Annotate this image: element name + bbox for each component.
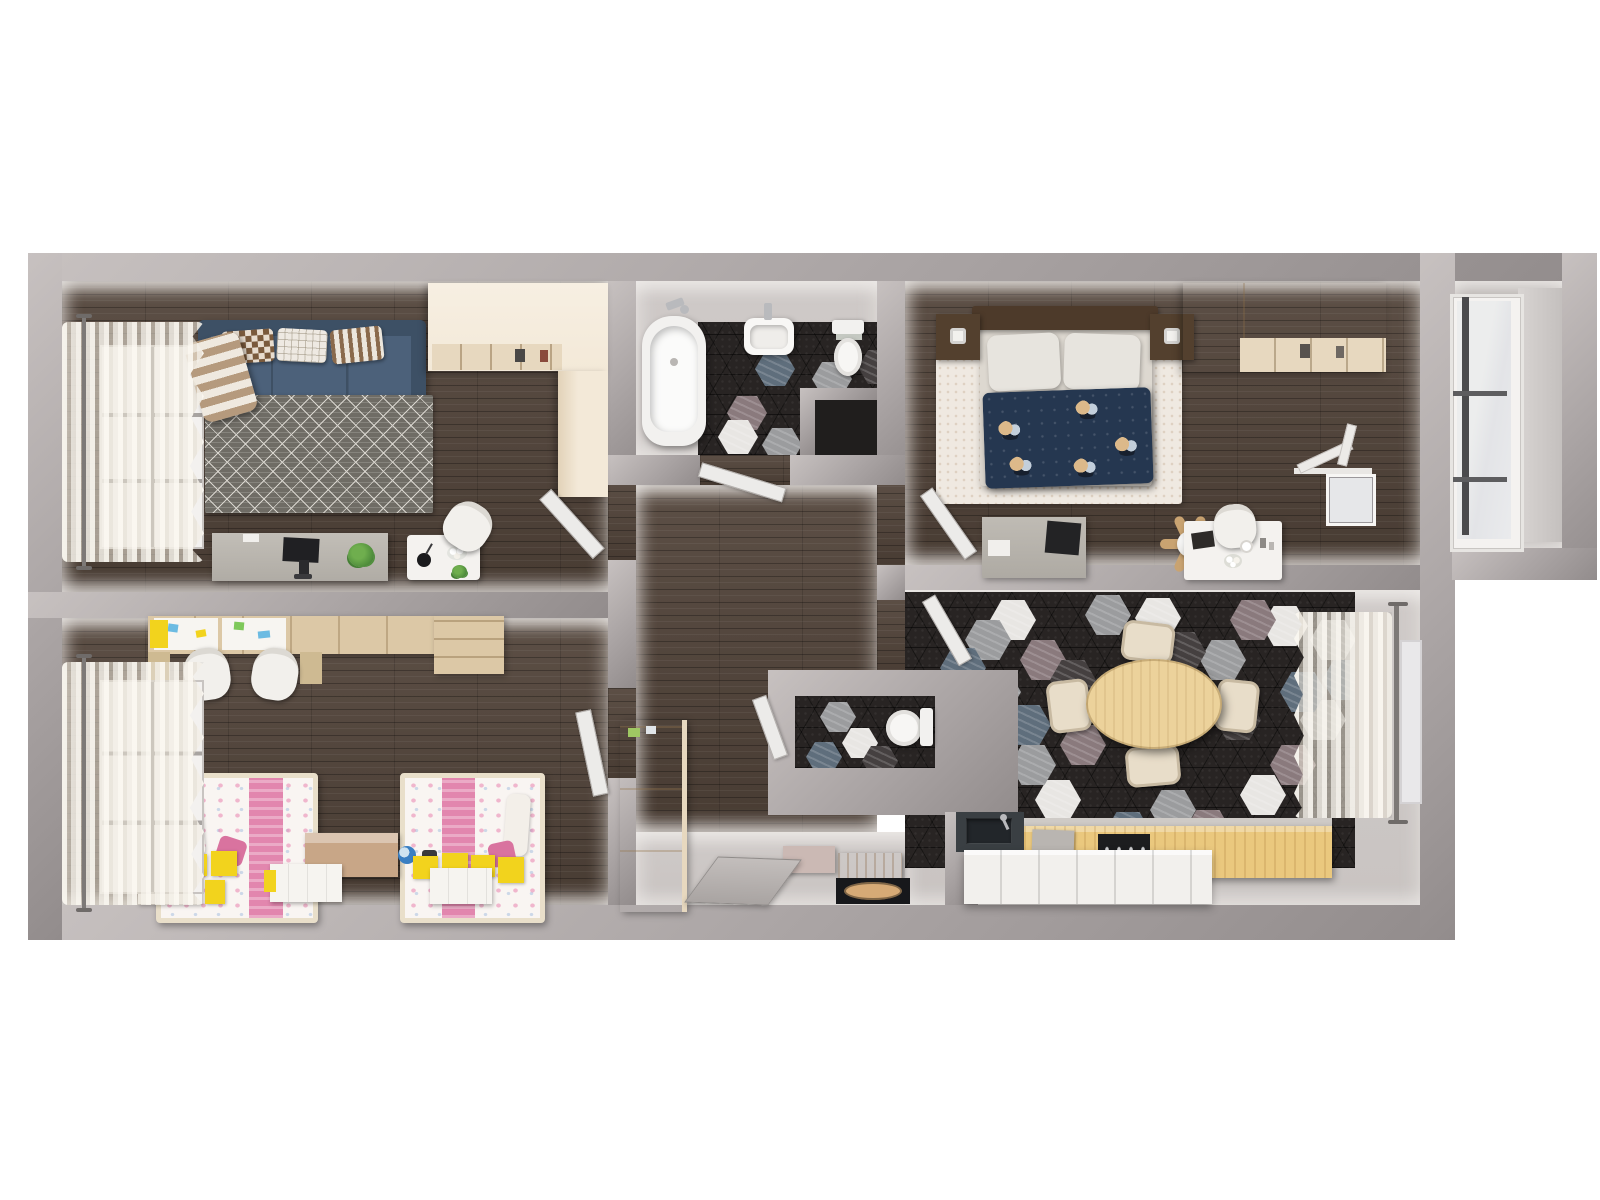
children-curtain-rod <box>82 658 86 910</box>
vanity-flowers <box>1224 554 1242 568</box>
sofa-armrest-right <box>411 320 426 400</box>
bedroom-window-pane <box>1326 474 1376 526</box>
curtain-rod-finial <box>76 566 92 570</box>
balcony-mullion <box>1453 391 1507 396</box>
wardrobe-item-red <box>540 350 548 362</box>
hex-tile-gray <box>762 428 802 455</box>
white-storage-box <box>430 868 492 904</box>
wall-hallway-right-middle <box>877 565 905 600</box>
duvet-flower <box>1073 457 1100 478</box>
duvet-flower <box>1075 399 1102 420</box>
wall-bath-niche-horizontal <box>800 388 877 400</box>
balcony-mullion <box>1453 477 1507 482</box>
living-desk-paper <box>243 534 259 542</box>
hex-tile-blue <box>806 742 842 768</box>
bathtub-basin <box>650 326 698 432</box>
vanity-bottle <box>1260 538 1266 548</box>
yellow-storage-cube <box>211 851 237 876</box>
wall-exterior-top <box>28 253 1597 281</box>
kids-desk-paper <box>258 630 271 638</box>
bathroom-toilet-tank <box>832 320 864 334</box>
bed-headboard <box>972 306 1158 330</box>
curtain-rod-finial <box>76 314 92 318</box>
kitchen-doorway-floor <box>877 598 905 680</box>
living-doorway-floor <box>608 478 636 560</box>
yellow-storage-cube <box>205 880 225 904</box>
bedroom-desk-pad <box>988 540 1010 556</box>
desk-plant <box>348 543 374 567</box>
bathroom-sink <box>744 318 794 355</box>
wc-toilet-tank <box>920 708 933 746</box>
duvet-flower <box>1009 455 1036 476</box>
cabinet-item-green <box>628 728 640 737</box>
bedroom-doorway-floor <box>877 480 905 565</box>
balcony-mullion <box>1462 297 1469 535</box>
kitchen-curtain-rod <box>1394 606 1399 822</box>
dining-chair-south <box>1124 744 1181 789</box>
kids-desk-paper <box>167 623 178 632</box>
kids-desk-paper <box>234 622 245 631</box>
wall-hallway-right-upper <box>877 281 905 480</box>
duvet-flower <box>1114 435 1141 456</box>
wall-living-children-divider <box>28 592 608 618</box>
kids-desk-side-panel <box>300 652 322 684</box>
wall-bathroom-bottom-left <box>608 455 700 485</box>
wall-hallway-left-middle <box>608 560 636 688</box>
bed-duvet-navy-floral <box>982 387 1153 489</box>
wardrobe-item-dark <box>515 349 525 362</box>
yellow-storage-cube <box>498 857 524 883</box>
kitchen-curtain <box>1294 612 1392 818</box>
bathtub <box>642 316 706 446</box>
wardrobe-item-dark <box>1300 344 1310 358</box>
pillow-striped <box>329 325 384 364</box>
balcony-window-reveal <box>1518 288 1562 542</box>
nightstand-lamp-right <box>1164 328 1180 344</box>
wall-balcony-right <box>1562 253 1597 580</box>
bedroom-monitor <box>1045 521 1082 556</box>
hex-tile-gray <box>820 702 856 732</box>
bathroom-toilet-bowl <box>834 338 862 376</box>
kitchen-cabinet-fronts <box>964 850 1212 904</box>
floor-plan-canvas <box>0 0 1600 1200</box>
table-lamp <box>417 553 431 567</box>
curtain-rod-finial <box>1388 602 1408 606</box>
wardrobe-item-gray <box>1336 346 1344 358</box>
vanity-photo-frame <box>1191 531 1215 550</box>
kitchen-window-pane <box>1400 640 1422 804</box>
curtain-rod-finial <box>76 654 92 658</box>
hex-tile-blue <box>755 352 795 386</box>
wall-bathroom-bottom-right <box>790 455 905 485</box>
curtain-rod-finial <box>1388 820 1408 824</box>
hallway-cabinet <box>620 720 686 912</box>
vanity-bottle <box>1269 542 1274 550</box>
entry-doormat <box>836 878 910 904</box>
hex-tile-white <box>1240 775 1286 815</box>
hex-tile-gray <box>1200 640 1246 680</box>
doormat-oval-rug <box>844 882 902 900</box>
dining-chair-north <box>1120 619 1176 665</box>
wc-toilet-bowl <box>886 710 922 746</box>
bath-niche-shaft <box>815 400 877 455</box>
sink-faucet <box>764 303 772 320</box>
table-plant <box>452 565 467 578</box>
dining-table-oval <box>1086 659 1222 749</box>
curtain-rod-finial <box>76 908 92 912</box>
bed-pillow-left <box>987 332 1062 392</box>
entry-bench <box>838 853 902 879</box>
vanity-plate <box>1240 540 1253 553</box>
kids-desk-top-2 <box>222 618 286 650</box>
white-storage-box <box>270 864 342 902</box>
wall-hallway-left-upper <box>608 281 636 478</box>
bedroom-wardrobe-shelves <box>1240 338 1386 372</box>
bathtub-drain <box>670 358 678 366</box>
yellow-storage-tab <box>264 870 276 892</box>
cabinet-item-white <box>646 726 656 734</box>
living-pc-base <box>294 574 312 579</box>
balcony-glazing-frame <box>1450 294 1524 552</box>
duvet-flower <box>997 420 1024 441</box>
hallway-cabinet-edge <box>682 720 687 912</box>
pillow-plaid <box>276 328 328 364</box>
living-curtain-rod <box>82 318 86 566</box>
hex-tile-white <box>1035 780 1081 820</box>
living-wardrobe-column <box>558 371 608 497</box>
bed-pillow-right <box>1063 333 1141 392</box>
sink-basin <box>750 325 788 349</box>
nightstand-lamp-left <box>950 328 966 344</box>
kids-desk-return-cabinet <box>434 616 504 674</box>
wall-balcony-bottom <box>1452 548 1597 580</box>
kids-desk-yellow-drawer <box>150 620 168 648</box>
bathtub-shower-head <box>680 305 689 314</box>
